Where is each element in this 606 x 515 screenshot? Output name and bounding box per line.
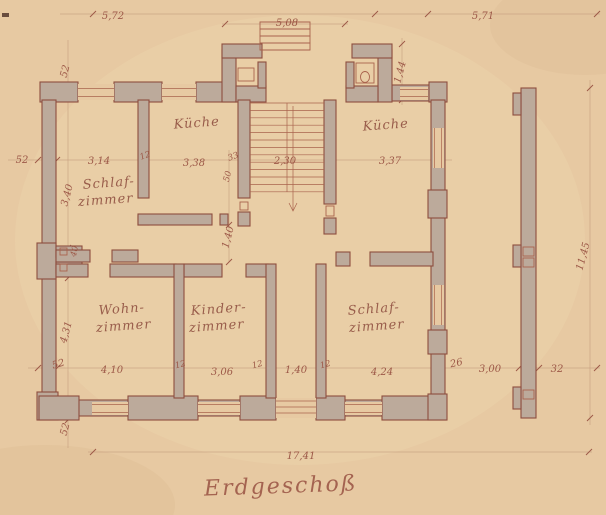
wall-pier — [428, 190, 447, 218]
window-opening — [345, 402, 382, 415]
wall-segment — [114, 82, 162, 102]
dim-label: 52 — [16, 155, 29, 166]
dim-label: 4,10 — [100, 365, 124, 376]
stairwell-wall — [238, 100, 250, 198]
dim-label: 3,00 — [479, 364, 502, 375]
window-opening — [162, 84, 196, 100]
stairwell-wall — [324, 100, 336, 204]
wall-segment — [246, 264, 268, 277]
wall-segment — [336, 252, 350, 266]
wall-pier — [428, 394, 447, 420]
wall-segment — [138, 100, 149, 198]
wall-segment — [370, 252, 433, 266]
window-opening — [92, 402, 128, 415]
wall-pier — [240, 396, 276, 420]
porch-wall — [222, 44, 262, 58]
wall-segment — [56, 264, 88, 277]
window-opening — [78, 84, 114, 100]
dim-label: 32 — [551, 364, 564, 375]
wall-pilaster — [513, 245, 521, 267]
floorplan-canvas: 5,72 5,08 5,71 52 3,14 12 3,38 33 50 2,3… — [0, 0, 606, 515]
wall-pier — [128, 396, 198, 420]
wall-segment — [266, 264, 276, 398]
wall-segment — [184, 264, 222, 277]
window-opening — [400, 87, 428, 100]
dim-label: 4,24 — [370, 367, 393, 378]
wall-pier — [428, 330, 447, 354]
wall-segment — [40, 82, 78, 102]
dim-label: 2,30 — [273, 156, 297, 167]
dim-label: 5,08 — [276, 18, 298, 29]
wall-pier — [37, 243, 56, 279]
wall-jamb — [220, 214, 228, 225]
blueprint-paper: 5,72 5,08 5,71 52 3,14 12 3,38 33 50 2,3… — [0, 0, 606, 515]
wall-jamb — [238, 212, 250, 226]
dim-label: 3,06 — [211, 367, 234, 378]
paper-mark — [2, 13, 9, 17]
dim-label-total-width: 17,41 — [287, 451, 316, 462]
window-opening — [198, 402, 240, 415]
dim-label: 1,40 — [285, 365, 308, 376]
dim-label: 3,37 — [379, 156, 402, 167]
wall-pier — [429, 82, 447, 102]
paper-highlight — [15, 15, 585, 465]
wall-segment — [316, 264, 326, 398]
wall-jamb — [324, 218, 336, 234]
wc-partition — [346, 62, 354, 88]
wall-pilaster — [513, 93, 521, 115]
wall-pier — [39, 396, 79, 420]
wall-segment — [138, 214, 212, 225]
wall-segment — [112, 250, 138, 262]
wall-segment — [110, 264, 176, 277]
wall-pilaster — [513, 387, 521, 409]
dim-label: 3,38 — [183, 158, 205, 169]
dim-label: 5,72 — [102, 11, 124, 22]
wc-partition — [258, 62, 266, 88]
dim-label: 3,14 — [88, 156, 110, 167]
wall-segment — [174, 264, 184, 398]
wall-pier — [316, 396, 345, 420]
porch-wall — [352, 44, 392, 58]
dim-label: 5,71 — [472, 11, 494, 22]
